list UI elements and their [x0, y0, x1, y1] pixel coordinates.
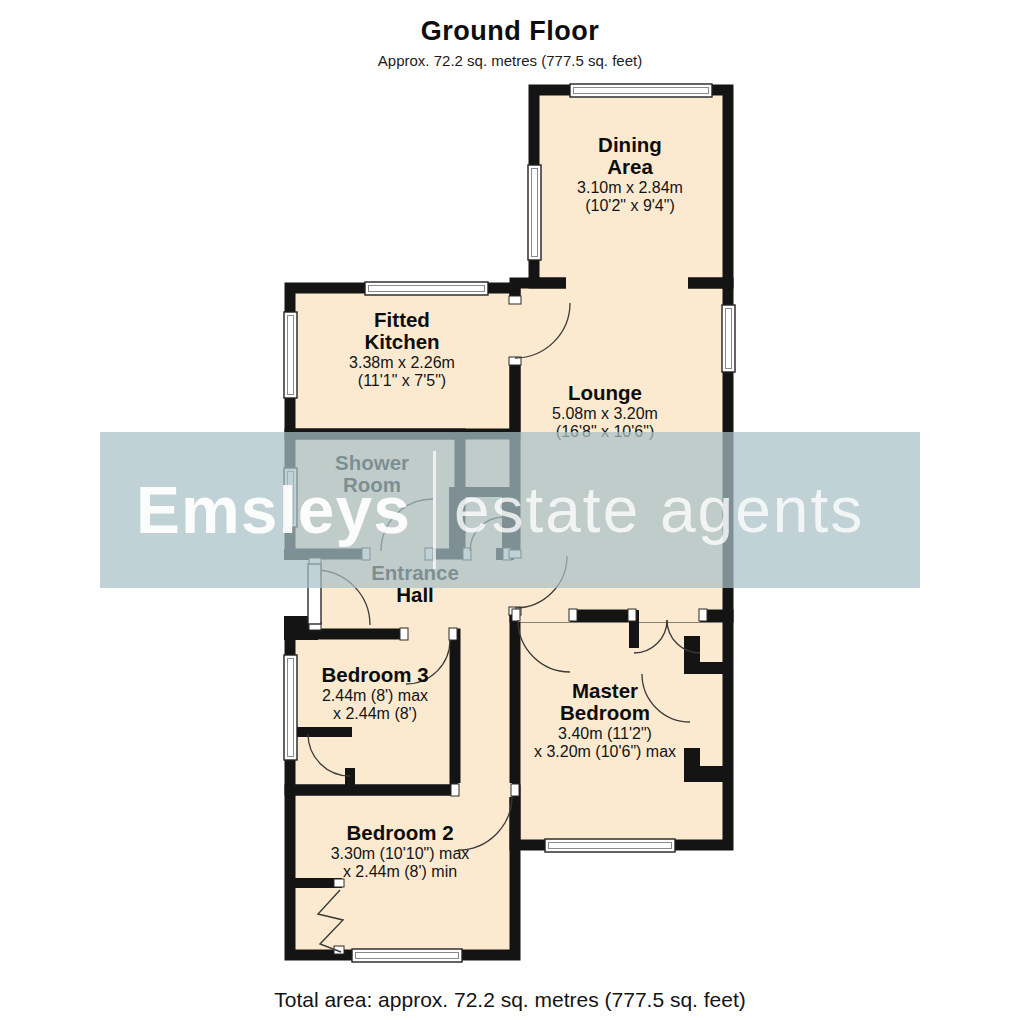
- room-name-line: Fitted: [374, 308, 430, 331]
- wall-stub: [345, 768, 355, 792]
- page-title: Ground Floor: [0, 16, 1020, 47]
- room-name-line: Master: [572, 679, 638, 702]
- room-name-line: Shower: [335, 451, 409, 474]
- page-subtitle: Approx. 72.2 sq. metres (777.5 sq. feet): [0, 52, 1020, 69]
- room-label-bed3: Bedroom 32.44m (8') maxx 2.44m (8'): [321, 663, 428, 722]
- window-icon: [570, 84, 712, 97]
- door-opening: [458, 783, 512, 797]
- window-icon: [545, 839, 675, 852]
- door-opening: [368, 547, 426, 561]
- door-threshold: [400, 628, 408, 640]
- wall-stub: [502, 487, 513, 554]
- room-label-shower: ShowerRoom: [335, 451, 409, 496]
- room-name-line: Lounge: [568, 381, 642, 404]
- window-icon: [365, 282, 488, 295]
- door-opening: [518, 608, 570, 622]
- door-threshold: [699, 609, 707, 621]
- door-threshold: [628, 609, 636, 621]
- window-icon: [352, 949, 462, 962]
- door-threshold: [334, 879, 344, 887]
- wall-stub: [684, 662, 730, 674]
- room-name-line: Hall: [396, 583, 434, 606]
- door-threshold: [509, 550, 521, 558]
- window-icon: [528, 165, 541, 260]
- window-icon: [284, 312, 297, 398]
- room-name-line: Room: [343, 473, 401, 496]
- room-dim-line: (16'8" x 10'6"): [556, 423, 654, 440]
- plan-header: Ground Floor Approx. 72.2 sq. metres (77…: [0, 16, 1020, 69]
- room-name-line: Dining: [598, 133, 662, 156]
- door-opening: [508, 303, 522, 358]
- room-dim-line: x 2.44m (8') min: [343, 863, 457, 880]
- door-threshold: [511, 784, 519, 796]
- room-name-line: Area: [607, 155, 653, 178]
- room-name-line: Bedroom: [560, 701, 650, 724]
- room-dim-line: x 3.20m (10'6") max: [534, 743, 676, 760]
- room-name-line: Kitchen: [364, 330, 439, 353]
- window-icon: [722, 305, 735, 372]
- window-icon: [284, 468, 297, 527]
- room-label-bed2: Bedroom 23.30m (10'10") maxx 2.44m (8') …: [331, 821, 470, 880]
- room-dim-line: (10'2" x 9'4"): [585, 197, 675, 214]
- door-threshold: [362, 548, 370, 560]
- door-threshold: [425, 548, 433, 560]
- floorplan-svg: DiningArea3.10m x 2.84m(10'2" x 9'4")Fit…: [0, 0, 1020, 1020]
- room-name-line: Bedroom 3: [321, 663, 428, 686]
- door-threshold: [512, 609, 520, 621]
- room-dim-line: 3.10m x 2.84m: [577, 179, 683, 196]
- window-icon: [284, 655, 297, 760]
- wall-stub: [449, 487, 460, 554]
- door-opening: [508, 556, 522, 608]
- room-dim-line: 2.44m (8') max: [322, 687, 428, 704]
- door-opening: [634, 608, 700, 622]
- room-name-line: Entrance: [371, 561, 459, 584]
- room-dim-line: 3.40m (11'2"): [558, 725, 652, 742]
- room-dim-line: x 2.44m (8'): [333, 705, 417, 722]
- room-name-line: Bedroom 2: [346, 821, 453, 844]
- room-fill: [515, 283, 728, 617]
- door-threshold: [569, 609, 577, 621]
- door-threshold: [449, 628, 457, 640]
- door-opening: [406, 627, 450, 641]
- total-area-text: Total area: approx. 72.2 sq. metres (777…: [0, 988, 1020, 1012]
- door-threshold: [509, 296, 521, 304]
- wall-stub: [290, 727, 352, 737]
- room-dim-line: 5.08m x 3.20m: [552, 405, 658, 422]
- door-opening: [566, 276, 688, 290]
- room-dim-line: 3.38m x 2.26m: [349, 354, 455, 371]
- door-threshold: [451, 784, 459, 796]
- wall-stub: [684, 766, 730, 782]
- front-door-leaf: [308, 564, 321, 624]
- room-dim-line: (11'1" x 7'5"): [358, 372, 446, 389]
- room-dim-line: 3.30m (10'10") max: [331, 845, 470, 862]
